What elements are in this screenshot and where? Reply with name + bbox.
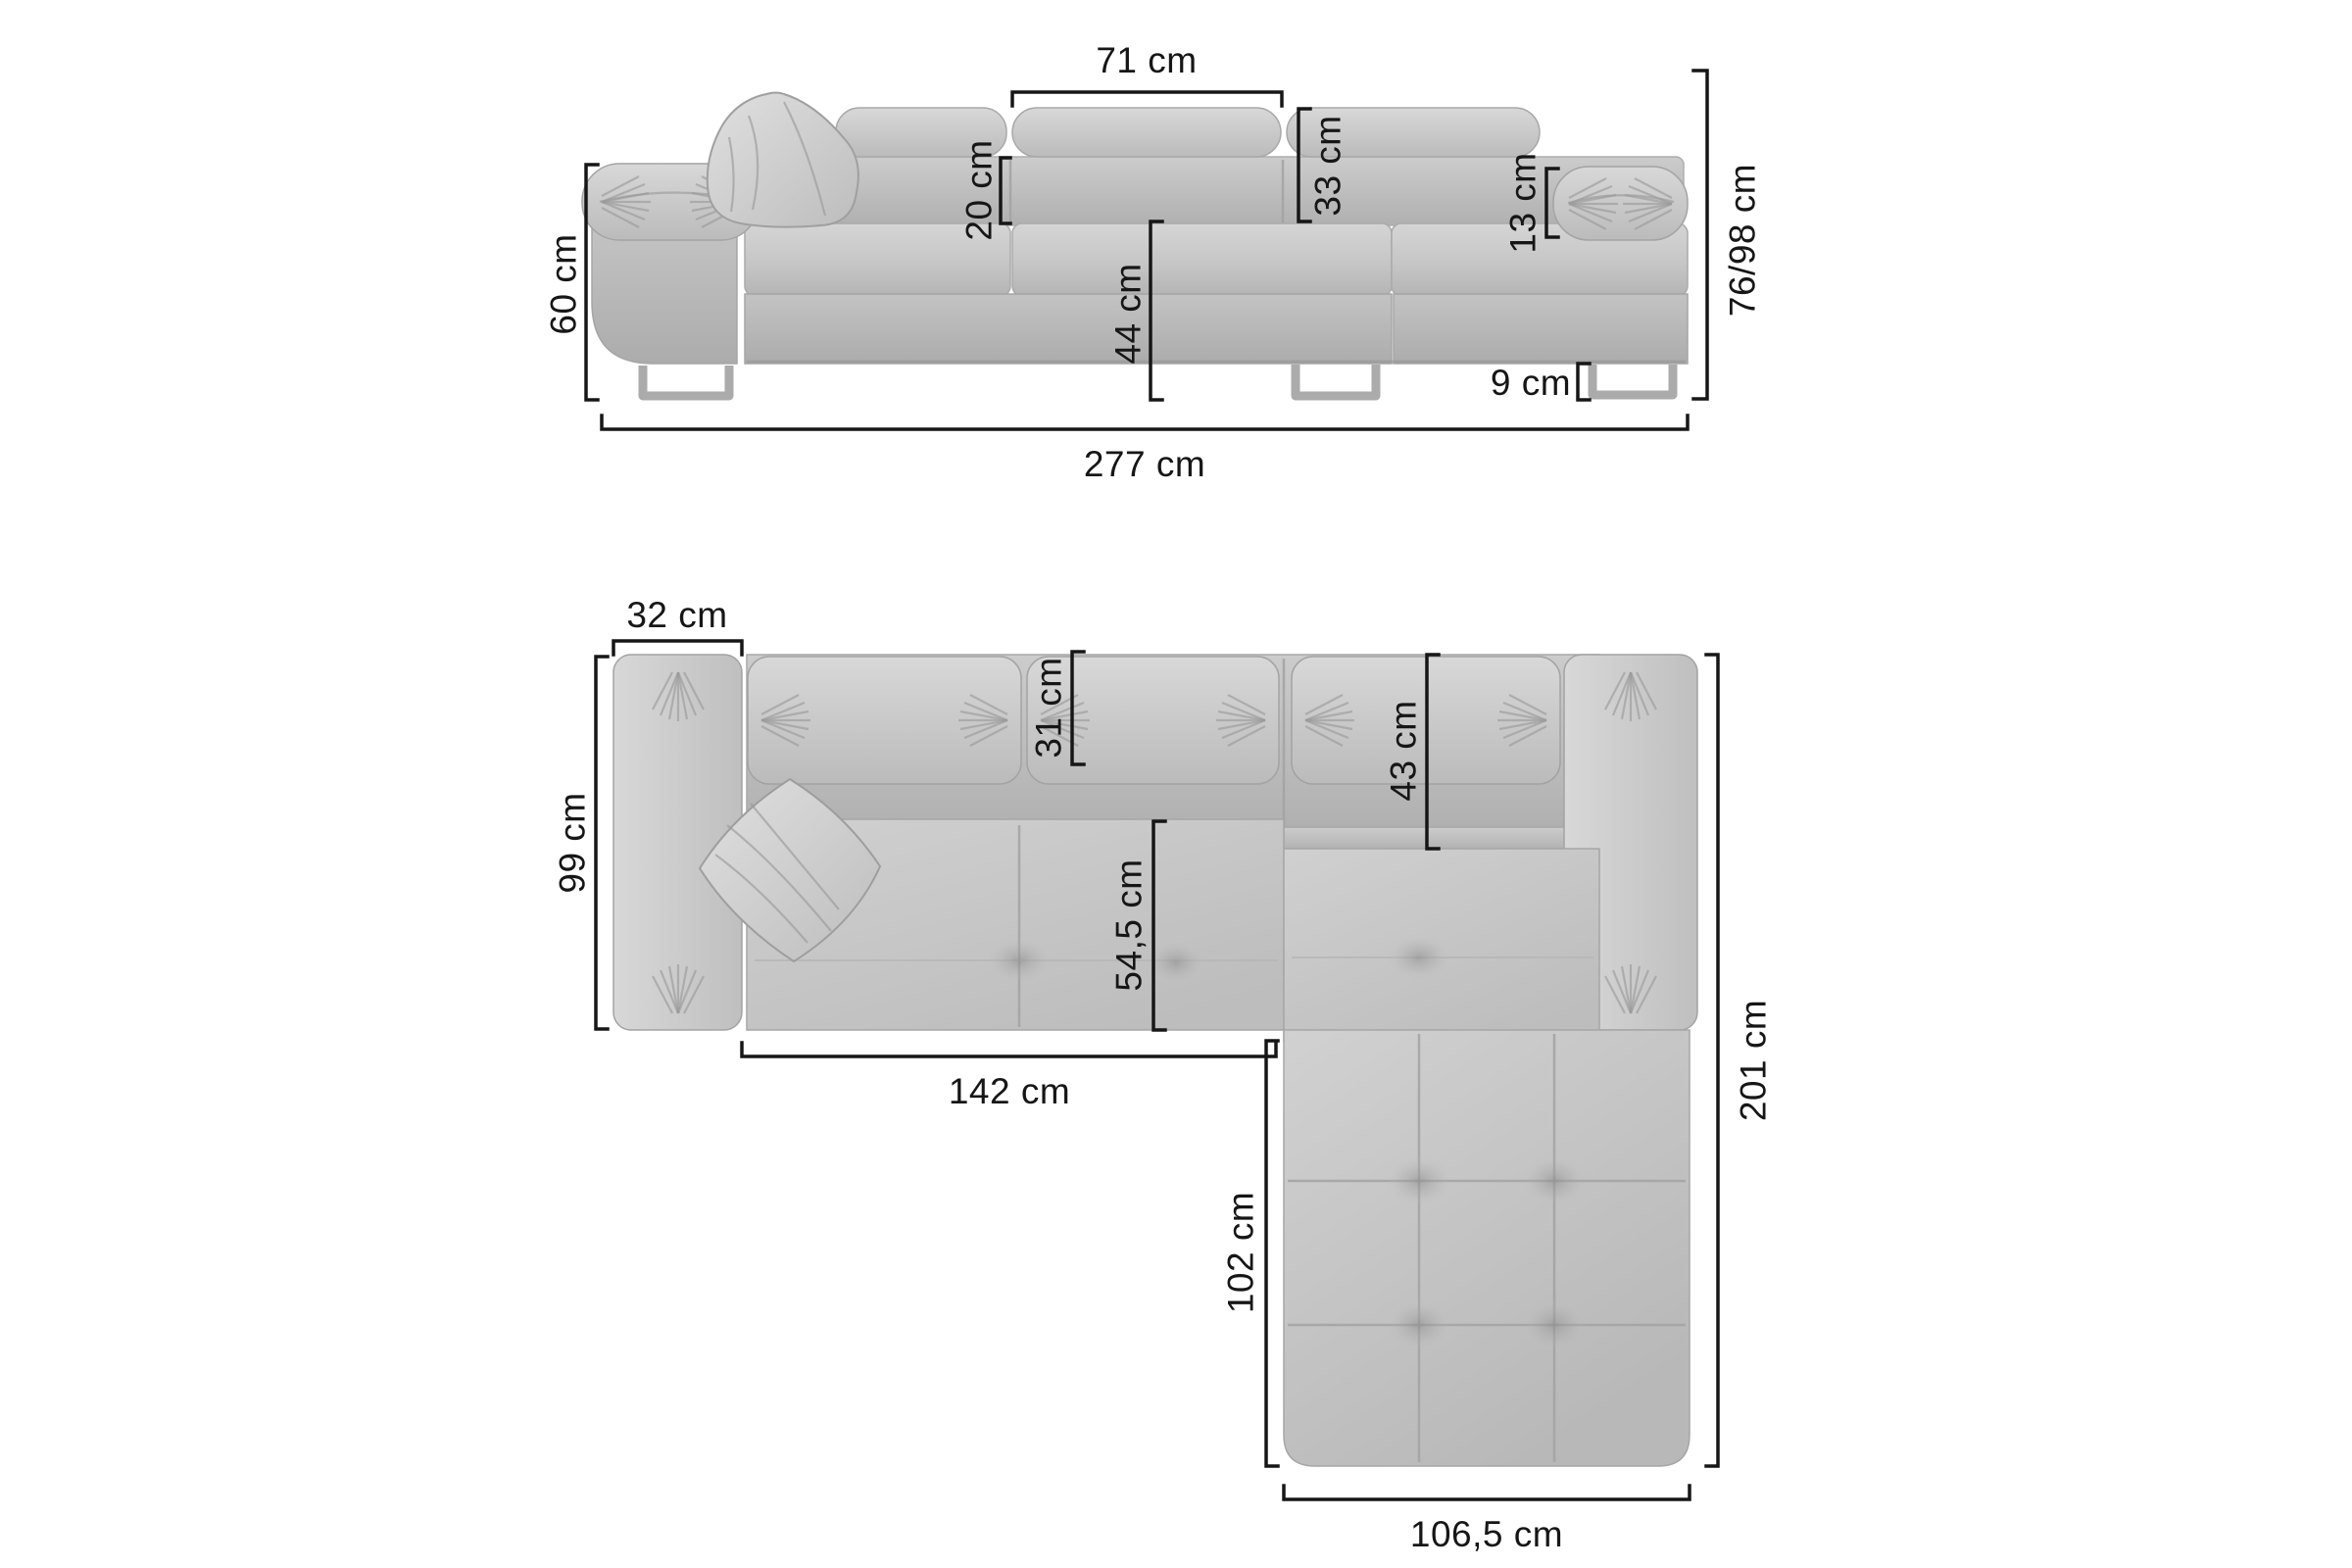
front-headrest-middle xyxy=(1012,108,1281,157)
dim-total-width-line xyxy=(602,416,1688,429)
front-backrest xyxy=(747,157,1684,225)
front-base-left xyxy=(745,294,1392,364)
dim-side-depth-label: 99 cm xyxy=(553,792,593,893)
dim-chaise-width-line xyxy=(1284,1486,1690,1499)
dim-leg-height-line xyxy=(1578,364,1590,400)
dim-total-width-label: 277 cm xyxy=(1084,444,1205,484)
dim-chaise-length-line xyxy=(1266,1041,1278,1466)
sofa-dimension-diagram: 71 cm 20 cm 33 cm 13 cm 60 cm 44 cm 9 cm… xyxy=(0,0,2352,1568)
dim-side-depth-line xyxy=(596,657,608,1029)
dim-leg-height-label: 9 cm xyxy=(1491,363,1571,403)
dim-total-depth-line xyxy=(1706,655,1718,1466)
dim-armrest-width-line xyxy=(613,641,742,655)
dim-seat-height-label: 44 cm xyxy=(1108,263,1149,364)
dim-back-cushion-depth-label: 31 cm xyxy=(1029,657,1069,758)
dim-chaise-length-label: 102 cm xyxy=(1221,1192,1261,1313)
dim-headrest-width-label: 71 cm xyxy=(1096,40,1197,80)
dim-armrest-pad-label: 13 cm xyxy=(1503,152,1543,253)
dim-total-depth-label: 201 cm xyxy=(1734,1000,1774,1121)
dim-back-gap-label: 20 cm xyxy=(959,139,1000,240)
dim-seat-depth-label: 54,5 cm xyxy=(1109,858,1150,991)
front-armrest-pad-right xyxy=(1553,167,1688,240)
front-leg-left xyxy=(643,366,729,396)
dim-seat-width-label: 142 cm xyxy=(949,1071,1070,1111)
front-pillow xyxy=(708,93,858,227)
front-leg-right xyxy=(1592,365,1673,395)
dim-armrest-width-label: 32 cm xyxy=(626,595,727,635)
dim-total-height-label: 76/98 cm xyxy=(1723,164,1763,317)
top-backrest-band-corner xyxy=(1284,827,1599,851)
front-view: 71 cm 20 cm 33 cm 13 cm 60 cm 44 cm 9 cm… xyxy=(544,40,1763,484)
top-back-pillow-left xyxy=(748,657,1021,784)
front-armrest-body-left xyxy=(592,227,737,364)
top-chaise xyxy=(1284,1030,1690,1466)
front-leg-middle xyxy=(1296,365,1376,396)
front-seat-cushion-middle xyxy=(1012,223,1392,296)
diagram-canvas: 71 cm 20 cm 33 cm 13 cm 60 cm 44 cm 9 cm… xyxy=(0,0,2352,1568)
dim-armrest-height-label: 60 cm xyxy=(544,233,584,334)
top-view: 32 cm 99 cm 31 cm 43 cm 54,5 cm 142 cm 1… xyxy=(553,595,1774,1554)
dim-headrest-width-line xyxy=(1012,92,1282,106)
dim-corner-back-depth-label: 43 cm xyxy=(1384,700,1424,801)
dim-headrest-span-label: 33 cm xyxy=(1308,115,1348,216)
dim-chaise-width-label: 106,5 cm xyxy=(1410,1514,1563,1554)
dim-total-height-line xyxy=(1693,71,1707,399)
front-base-right xyxy=(1394,294,1688,364)
dim-seat-width-line xyxy=(742,1043,1276,1056)
